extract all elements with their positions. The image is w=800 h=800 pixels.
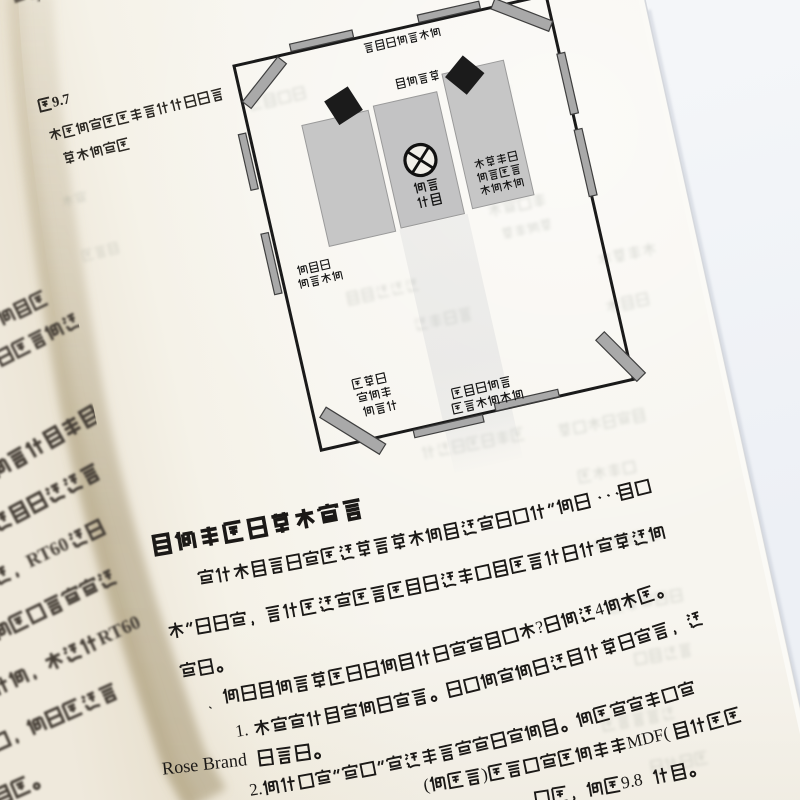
svg-text:9.8: 9.8: [619, 770, 644, 793]
